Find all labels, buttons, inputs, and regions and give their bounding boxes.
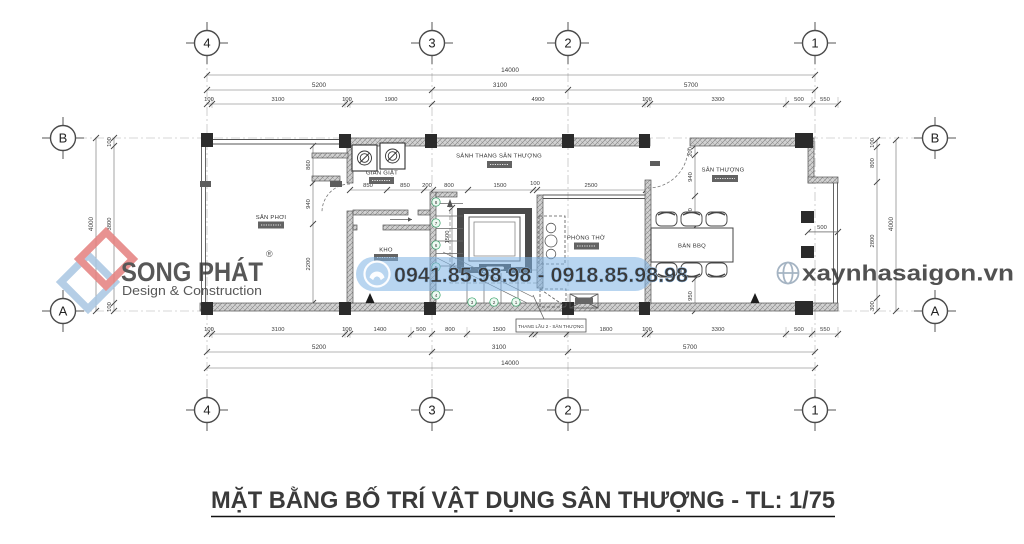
stair-tread-number: 7: [435, 221, 438, 226]
room-label-kho: KHO: [379, 248, 393, 254]
dim-int: 1500: [494, 183, 507, 189]
dim-bottom: 3300: [712, 327, 725, 333]
grid-bubble-row: A: [59, 304, 68, 319]
dim-left-total: 4000: [88, 216, 95, 231]
dim-bottom-span: 5700: [683, 344, 698, 351]
grid-bubble-col: 4: [203, 403, 210, 418]
dim-top: 1900: [385, 97, 398, 103]
dim-bottom-span: 5200: [312, 344, 327, 351]
grid-bubble-row: B: [931, 131, 940, 146]
dim-top-total: 14000: [501, 67, 519, 74]
sheet-title: MẶT BẰNG BỐ TRÍ VẬT DỤNG SÂN THƯỢNG - TL…: [211, 486, 835, 517]
dim-int-right: 940: [688, 172, 694, 182]
stair-tread-number: 6: [435, 243, 438, 248]
stair-tread-number: 1: [515, 300, 518, 305]
dim-int: 100: [530, 181, 540, 187]
washing-machines: [352, 143, 405, 171]
dim-bay: 500: [817, 225, 827, 231]
dim-bottom-span: 3100: [492, 344, 507, 351]
dim-top: 4900: [532, 97, 545, 103]
dim-int: 850: [400, 183, 410, 189]
watermark-website: xaynhasaigon.vn: [778, 261, 1015, 286]
dim-right: 2800: [870, 235, 876, 248]
logo-subtitle: Design & Construction: [122, 284, 262, 298]
level-markers: [366, 293, 760, 303]
dim-int-right: 200: [688, 147, 694, 157]
dim-top: 500: [794, 97, 804, 103]
dim-right: 300: [870, 301, 876, 311]
room-label-sanh-thang: SẢNH THANG SÂN THƯỢNG: [456, 153, 542, 160]
dim-top: 3300: [712, 97, 725, 103]
watermark-phone: 0941.85.98.98 - 0918.85.98.98: [356, 257, 688, 291]
dim-bottom: 100: [204, 327, 214, 333]
dim-top: 100: [204, 97, 214, 103]
dim-right-total: 4000: [888, 216, 895, 231]
grid-bubble-col: 2: [564, 36, 571, 51]
dim-bottom: 1500: [493, 327, 506, 333]
dim-top: 3100: [272, 97, 285, 103]
dim-bottom: 550: [820, 327, 830, 333]
phone-numbers: 0941.85.98.98 - 0918.85.98.98: [394, 264, 688, 287]
grid-bubble-row: B: [59, 131, 68, 146]
stair-tread-number: 8: [435, 200, 438, 205]
sliding-door-arrow: [390, 217, 412, 221]
dim-top-span: 3100: [493, 82, 508, 89]
dim-int-left: 2200: [306, 258, 312, 271]
logo-registered-mark: ®: [266, 249, 273, 259]
floor-plan-sheet: 14000 5200 3100 5700 100 3100 100 1900 4…: [0, 0, 1024, 544]
dim-bottom-total: 14000: [501, 360, 519, 367]
stair-tread-number: 2: [493, 300, 496, 305]
dim-right: 100: [870, 138, 876, 148]
room-label-phong-tho: PHÒNG THỜ: [567, 235, 605, 242]
grid-bubble-col: 1: [811, 403, 818, 418]
dim-bottom: 100: [642, 327, 652, 333]
grid-bubble-col: 3: [428, 403, 435, 418]
room-label-gian-giat: GIAN GIẶT: [366, 170, 398, 177]
grid-bubble-row: A: [931, 304, 940, 319]
dim-bottom: 500: [794, 327, 804, 333]
dim-bottom: 100: [342, 327, 352, 333]
dim-top: 100: [342, 97, 352, 103]
stair-direction-arrow: [447, 199, 453, 207]
dimension-text-bottom: 100 3100 100 1400 500 800 1500 100 700 1…: [204, 327, 830, 367]
dim-top-span: 5700: [684, 82, 699, 89]
dim-right: 800: [870, 158, 876, 168]
door-arc-santhuong: [648, 148, 688, 188]
stair-callout-text: THANG LẦU 2 - SÂN THƯỢNG: [518, 323, 584, 329]
dim-left: 100: [107, 137, 113, 147]
dim-int-right: 950: [688, 291, 694, 301]
elevator-car: [469, 217, 520, 261]
dim-int: 2500: [585, 183, 598, 189]
dim-bottom: 1400: [374, 327, 387, 333]
room-label-san-thuong: SÂN THƯỢNG: [702, 167, 745, 174]
grid-bubble-col: 2: [564, 403, 571, 418]
dim-left: 3800: [107, 218, 113, 231]
dim-left: 100: [107, 302, 113, 312]
dim-int-left: 860: [306, 160, 312, 170]
globe-icon: [778, 263, 799, 284]
grid-bubble-col: 4: [203, 36, 210, 51]
dim-bottom: 1800: [600, 327, 613, 333]
stair-tread-number: 3: [471, 300, 474, 305]
room-label-ban-bbq: BÀN BBQ: [678, 243, 706, 250]
logo-name: SONG PHÁT: [121, 256, 263, 287]
door-arc-sanphoi: [322, 184, 350, 212]
dim-top: 100: [642, 97, 652, 103]
dimension-text-top: 14000 5200 3100 5700 100 3100 100 1900 4…: [204, 67, 830, 103]
grid-bubble-col: 3: [428, 36, 435, 51]
floor-plan-drawing: 14000 5200 3100 5700 100 3100 100 1900 4…: [0, 0, 1024, 544]
dim-int: 200: [422, 183, 432, 189]
dim-bottom: 800: [445, 327, 455, 333]
title-text: MẶT BẰNG BỐ TRÍ VẬT DỤNG SÂN THƯỢNG - TL…: [211, 486, 835, 514]
stair-tread-number: 4: [435, 293, 438, 298]
dim-int-left: 940: [306, 199, 312, 209]
room-label-san-phoi: SÂN PHƠI: [256, 214, 287, 221]
dim-top-span: 5200: [312, 82, 327, 89]
dim-int: 800: [444, 183, 454, 189]
dim-top: 550: [820, 97, 830, 103]
dim-bottom: 500: [416, 327, 426, 333]
grid-bubble-col: 1: [811, 36, 818, 51]
website-text: xaynhasaigon.vn: [802, 261, 1014, 286]
dim-bottom: 3100: [272, 327, 285, 333]
watermark-logo: SONG PHÁT ® Design & Construction: [61, 232, 273, 309]
